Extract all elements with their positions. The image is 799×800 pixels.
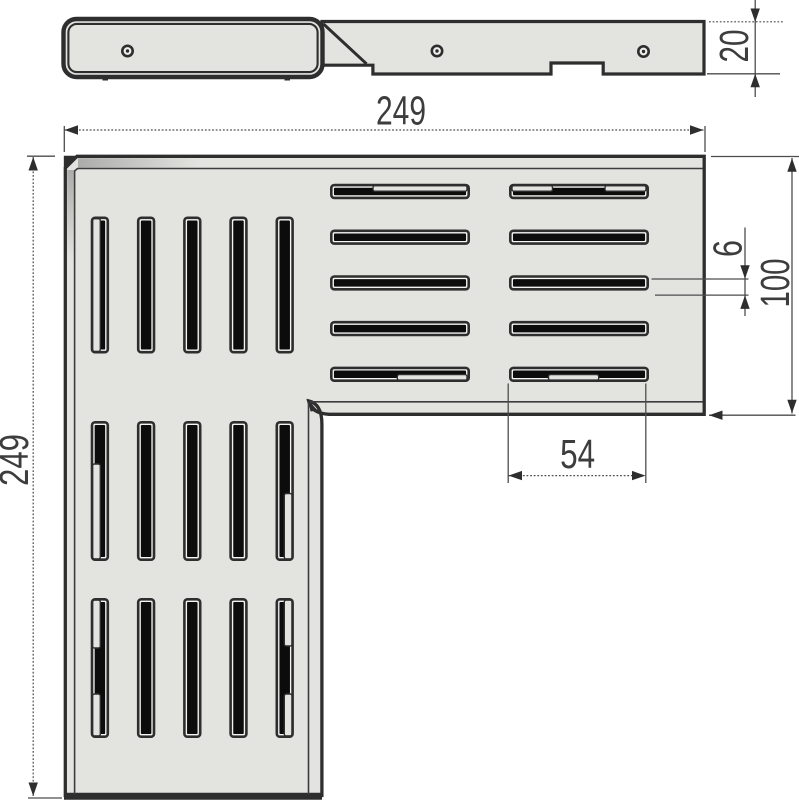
svg-text:20: 20 bbox=[711, 30, 757, 63]
svg-text:249: 249 bbox=[376, 88, 426, 134]
svg-text:6: 6 bbox=[705, 240, 751, 257]
svg-text:249: 249 bbox=[0, 434, 37, 486]
svg-text:54: 54 bbox=[560, 431, 595, 477]
svg-text:100: 100 bbox=[752, 259, 798, 308]
